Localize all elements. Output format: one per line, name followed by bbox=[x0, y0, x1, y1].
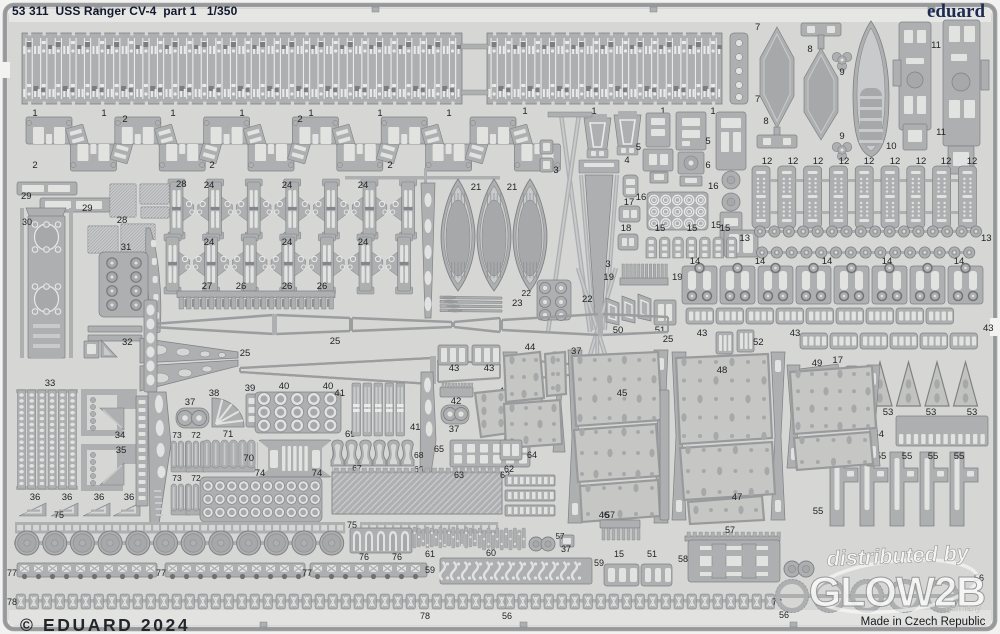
svg-text:29: 29 bbox=[82, 203, 93, 214]
svg-text:33: 33 bbox=[45, 378, 56, 389]
svg-text:26: 26 bbox=[236, 281, 247, 292]
svg-text:24: 24 bbox=[204, 237, 215, 248]
svg-text:1: 1 bbox=[101, 108, 106, 119]
svg-text:19: 19 bbox=[603, 272, 614, 283]
svg-text:9: 9 bbox=[839, 67, 844, 78]
svg-text:36: 36 bbox=[94, 492, 105, 503]
svg-text:38: 38 bbox=[209, 388, 220, 399]
svg-text:14: 14 bbox=[690, 256, 701, 267]
svg-text:22: 22 bbox=[522, 288, 532, 298]
svg-text:74: 74 bbox=[255, 468, 266, 479]
svg-text:24: 24 bbox=[358, 180, 369, 191]
svg-text:30: 30 bbox=[22, 217, 32, 227]
svg-text:48: 48 bbox=[717, 365, 728, 376]
svg-text:56: 56 bbox=[502, 611, 512, 621]
svg-text:40: 40 bbox=[323, 381, 334, 392]
svg-text:55: 55 bbox=[902, 451, 913, 462]
svg-text:77: 77 bbox=[156, 568, 166, 578]
svg-text:22: 22 bbox=[582, 294, 593, 305]
svg-text:71: 71 bbox=[223, 429, 234, 440]
svg-text:16: 16 bbox=[708, 181, 719, 192]
svg-text:78: 78 bbox=[420, 611, 430, 621]
svg-text:eduard: eduard bbox=[927, 1, 986, 22]
svg-text:63: 63 bbox=[454, 470, 464, 480]
svg-text:1: 1 bbox=[446, 108, 451, 119]
svg-text:65: 65 bbox=[434, 444, 444, 454]
svg-text:40: 40 bbox=[279, 381, 290, 392]
svg-text:37: 37 bbox=[561, 544, 571, 554]
svg-text:7: 7 bbox=[755, 94, 760, 105]
svg-text:germany: germany bbox=[946, 603, 982, 613]
svg-text:8: 8 bbox=[763, 116, 768, 127]
svg-text:7: 7 bbox=[755, 22, 760, 33]
svg-text:15: 15 bbox=[687, 223, 698, 234]
svg-text:1: 1 bbox=[170, 108, 175, 119]
svg-text:35: 35 bbox=[116, 445, 127, 456]
svg-text:72: 72 bbox=[191, 430, 201, 440]
svg-text:43: 43 bbox=[484, 363, 495, 374]
svg-text:15: 15 bbox=[614, 549, 624, 559]
svg-text:64: 64 bbox=[527, 450, 537, 460]
svg-text:12: 12 bbox=[813, 156, 824, 167]
svg-text:43: 43 bbox=[790, 328, 801, 339]
svg-text:21: 21 bbox=[507, 182, 518, 193]
svg-text:15: 15 bbox=[720, 223, 731, 234]
svg-text:12: 12 bbox=[967, 156, 978, 167]
svg-text:43: 43 bbox=[983, 323, 994, 334]
svg-text:41: 41 bbox=[334, 388, 345, 399]
svg-text:12: 12 bbox=[916, 156, 927, 167]
svg-text:32: 32 bbox=[122, 337, 133, 348]
svg-text:29: 29 bbox=[21, 191, 32, 202]
svg-text:43: 43 bbox=[697, 328, 708, 339]
svg-text:24: 24 bbox=[204, 180, 215, 191]
svg-text:1: 1 bbox=[710, 106, 715, 117]
svg-text:45: 45 bbox=[617, 388, 628, 399]
svg-text:14: 14 bbox=[755, 256, 766, 267]
svg-text:77: 77 bbox=[302, 568, 312, 578]
svg-text:43: 43 bbox=[449, 363, 460, 374]
svg-text:Made in Czech Republic: Made in Czech Republic bbox=[861, 616, 986, 628]
svg-text:57: 57 bbox=[725, 525, 735, 535]
svg-text:55: 55 bbox=[813, 506, 824, 517]
svg-text:19: 19 bbox=[672, 272, 683, 283]
svg-text:76: 76 bbox=[392, 552, 402, 562]
svg-text:36: 36 bbox=[30, 492, 41, 503]
svg-text:27: 27 bbox=[202, 281, 213, 292]
svg-text:16: 16 bbox=[636, 192, 647, 203]
svg-text:2: 2 bbox=[209, 160, 214, 171]
svg-text:26: 26 bbox=[317, 281, 328, 292]
svg-text:53 311 USS Ranger CV-4 part: 53 311 USS Ranger CV-4 part 1 1/350 bbox=[12, 4, 238, 18]
svg-text:52: 52 bbox=[753, 337, 764, 348]
svg-text:8: 8 bbox=[807, 44, 812, 55]
svg-text:6: 6 bbox=[705, 160, 710, 171]
svg-text:74: 74 bbox=[312, 468, 323, 479]
svg-text:2: 2 bbox=[122, 114, 127, 125]
svg-text:5: 5 bbox=[636, 142, 641, 153]
svg-text:68: 68 bbox=[414, 450, 424, 460]
svg-text:5: 5 bbox=[705, 136, 710, 147]
svg-text:70: 70 bbox=[243, 453, 254, 464]
svg-text:55: 55 bbox=[928, 451, 939, 462]
svg-text:13: 13 bbox=[981, 233, 992, 244]
svg-text:14: 14 bbox=[882, 256, 893, 267]
svg-text:55: 55 bbox=[954, 451, 965, 462]
svg-text:77: 77 bbox=[7, 568, 17, 578]
svg-text:44: 44 bbox=[525, 342, 536, 353]
svg-text:73: 73 bbox=[172, 473, 182, 483]
svg-text:12: 12 bbox=[788, 156, 799, 167]
svg-text:12: 12 bbox=[762, 156, 773, 167]
svg-text:76: 76 bbox=[359, 552, 369, 562]
svg-text:12: 12 bbox=[864, 156, 875, 167]
svg-text:28: 28 bbox=[176, 179, 187, 190]
svg-text:72: 72 bbox=[191, 473, 201, 483]
svg-text:12: 12 bbox=[941, 156, 952, 167]
svg-text:24: 24 bbox=[282, 237, 293, 248]
svg-text:2: 2 bbox=[297, 114, 302, 125]
svg-text:53: 53 bbox=[883, 407, 894, 418]
svg-text:3: 3 bbox=[553, 165, 558, 176]
svg-text:24: 24 bbox=[282, 180, 293, 191]
svg-text:25: 25 bbox=[663, 334, 674, 345]
svg-text:34: 34 bbox=[115, 430, 126, 441]
svg-text:37: 37 bbox=[185, 397, 196, 408]
svg-text:14: 14 bbox=[822, 256, 833, 267]
svg-text:61: 61 bbox=[425, 549, 435, 559]
svg-text:78: 78 bbox=[7, 597, 17, 607]
svg-text:57: 57 bbox=[556, 532, 565, 541]
svg-text:25: 25 bbox=[330, 336, 341, 347]
svg-text:31: 31 bbox=[121, 242, 132, 253]
svg-text:13: 13 bbox=[739, 233, 750, 244]
svg-text:58: 58 bbox=[678, 554, 688, 564]
svg-text:10: 10 bbox=[886, 141, 897, 152]
svg-text:23: 23 bbox=[512, 298, 523, 309]
svg-text:62: 62 bbox=[504, 464, 514, 474]
svg-text:3: 3 bbox=[605, 259, 610, 270]
svg-text:39: 39 bbox=[245, 383, 256, 394]
svg-text:56: 56 bbox=[779, 610, 789, 620]
svg-text:41: 41 bbox=[410, 422, 421, 433]
svg-text:14: 14 bbox=[954, 256, 965, 267]
svg-text:73: 73 bbox=[172, 430, 182, 440]
svg-text:49: 49 bbox=[812, 358, 823, 369]
svg-text:11: 11 bbox=[931, 40, 941, 51]
svg-text:36: 36 bbox=[124, 492, 135, 503]
svg-text:60: 60 bbox=[486, 548, 496, 558]
svg-text:47: 47 bbox=[732, 492, 743, 503]
svg-text:75: 75 bbox=[54, 510, 64, 520]
svg-text:© EDUARD 2024: © EDUARD 2024 bbox=[20, 615, 190, 634]
svg-text:2: 2 bbox=[32, 160, 37, 171]
svg-text:59: 59 bbox=[425, 565, 435, 575]
svg-text:59: 59 bbox=[594, 558, 604, 568]
svg-text:51: 51 bbox=[647, 549, 657, 559]
svg-text:21: 21 bbox=[471, 182, 482, 193]
svg-text:57: 57 bbox=[605, 510, 615, 520]
svg-text:28: 28 bbox=[117, 215, 128, 226]
svg-text:15: 15 bbox=[655, 223, 666, 234]
svg-text:25: 25 bbox=[240, 348, 251, 359]
svg-text:4: 4 bbox=[624, 155, 629, 166]
svg-text:26: 26 bbox=[282, 281, 293, 292]
svg-text:18: 18 bbox=[621, 223, 632, 234]
svg-text:9: 9 bbox=[839, 131, 844, 142]
svg-text:1: 1 bbox=[522, 106, 527, 117]
svg-text:12: 12 bbox=[890, 156, 901, 167]
svg-text:12: 12 bbox=[839, 156, 850, 167]
svg-text:24: 24 bbox=[358, 237, 369, 248]
svg-text:37: 37 bbox=[449, 424, 460, 435]
svg-text:36: 36 bbox=[62, 492, 73, 503]
svg-text:11: 11 bbox=[936, 127, 946, 138]
svg-text:2: 2 bbox=[387, 160, 392, 171]
